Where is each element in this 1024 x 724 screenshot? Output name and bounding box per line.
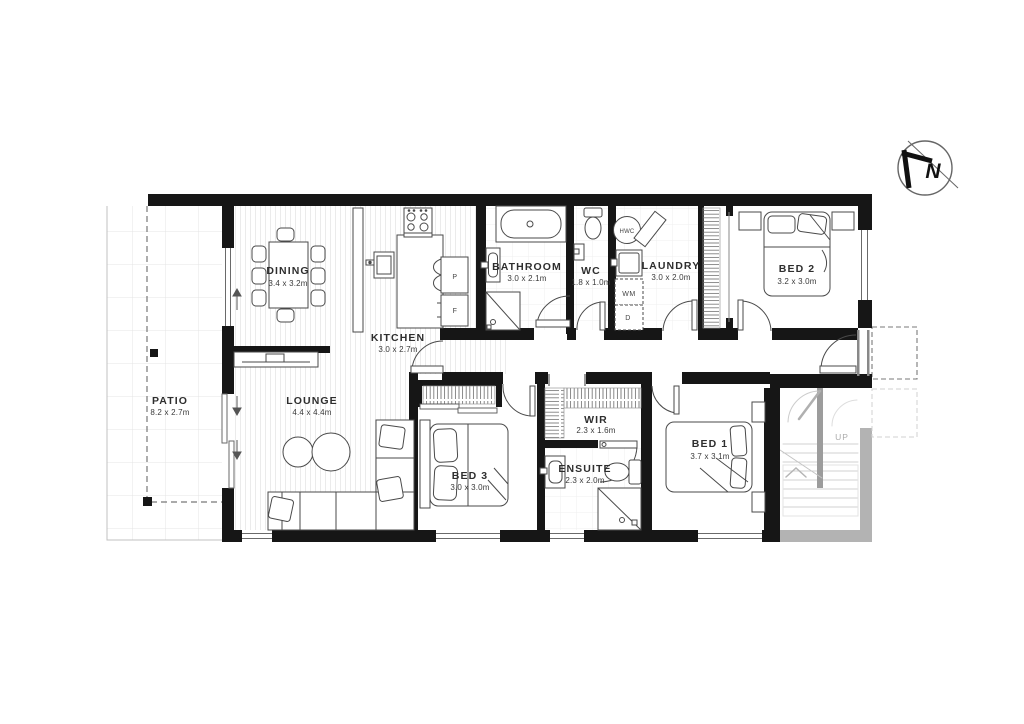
lounge-sliding-door — [222, 394, 234, 488]
bathtub — [496, 206, 566, 242]
stair-stringer — [817, 388, 823, 488]
label-wc: WC — [581, 265, 601, 277]
laundry-tub — [611, 250, 642, 276]
floor-plan: DINING 3.4 x 3.2m KITCHEN 3.0 x 2.7m BAT… — [0, 0, 1024, 724]
dims-ensuite: 2.3 x 2.0m — [565, 476, 604, 485]
ensuite-shower — [598, 488, 641, 530]
label-wir: WIR — [584, 414, 608, 426]
label-bed2: BED 2 — [779, 263, 815, 275]
stairwell-wall — [778, 530, 872, 542]
dims-dining: 3.4 x 3.2m — [268, 279, 307, 288]
patio-post — [143, 497, 152, 506]
dims-bed3: 3.0 x 3.0m — [450, 483, 489, 492]
ottoman — [283, 437, 313, 467]
cooktop — [404, 208, 432, 237]
floor-plan-page: DINING 3.4 x 3.2m KITCHEN 3.0 x 2.7m BAT… — [0, 0, 1024, 724]
bed1-window — [698, 530, 762, 542]
label-fridge: F — [453, 308, 458, 315]
dims-kitchen: 3.0 x 2.7m — [378, 345, 417, 354]
stairwell — [778, 388, 872, 542]
bed3-door — [503, 384, 535, 416]
label-ensuite: ENSUITE — [558, 463, 611, 475]
label-up: UP — [835, 432, 849, 442]
ensuite-window — [550, 530, 584, 542]
bed1-door — [652, 386, 679, 414]
dims-bed1: 3.7 x 3.1m — [690, 452, 729, 461]
patio-post — [150, 349, 158, 357]
bathroom-shower — [486, 292, 520, 330]
bed3-furniture — [420, 420, 508, 508]
entry-door — [820, 335, 856, 373]
label-bed1: BED 1 — [692, 438, 728, 450]
label-bathroom: BATHROOM — [492, 261, 562, 273]
stair-direction-arrow-icon — [786, 468, 806, 477]
label-lounge: LOUNGE — [286, 395, 338, 407]
label-hwc: HWC — [620, 229, 635, 235]
lounge-bottom-window — [242, 530, 272, 542]
label-wm: WM — [622, 291, 635, 298]
label-laundry: LAUNDRY — [642, 260, 701, 272]
dining-window — [222, 248, 234, 326]
label-bed3: BED 3 — [452, 470, 488, 482]
entry-porch — [872, 327, 917, 437]
dims-laundry: 3.0 x 2.0m — [651, 273, 690, 282]
kitchen-bench — [397, 235, 443, 328]
dims-bathroom: 3.0 x 2.1m — [507, 274, 546, 283]
label-dryer: D — [625, 315, 631, 322]
bed2-door — [738, 300, 771, 331]
label-north: N — [925, 160, 941, 183]
patio-area — [107, 206, 222, 540]
dims-lounge: 4.4 x 4.4m — [292, 408, 331, 417]
dims-wc: 1.8 x 1.0m — [571, 278, 610, 287]
bed3-window — [436, 530, 500, 542]
bed2-wardrobe — [703, 208, 720, 328]
dims-bed2: 3.2 x 3.0m — [777, 277, 816, 286]
bed3-wardrobe — [417, 380, 502, 413]
dims-wir: 2.3 x 1.6m — [576, 426, 615, 435]
label-pantry: P — [452, 274, 457, 281]
wir-opening — [548, 374, 586, 386]
bed2-window — [858, 230, 872, 300]
stairwell-wall — [860, 428, 872, 542]
wc-toilet — [584, 208, 602, 239]
wc-basin — [574, 244, 584, 260]
dims-patio: 8.2 x 2.7m — [150, 408, 189, 417]
label-patio: PATIO — [152, 395, 188, 407]
label-dining: DINING — [266, 265, 309, 277]
entry-sidelight — [857, 330, 870, 376]
stair-door-leaf — [799, 391, 820, 419]
tv-unit — [234, 352, 318, 367]
ottoman — [312, 433, 350, 471]
label-kitchen: KITCHEN — [371, 332, 425, 344]
